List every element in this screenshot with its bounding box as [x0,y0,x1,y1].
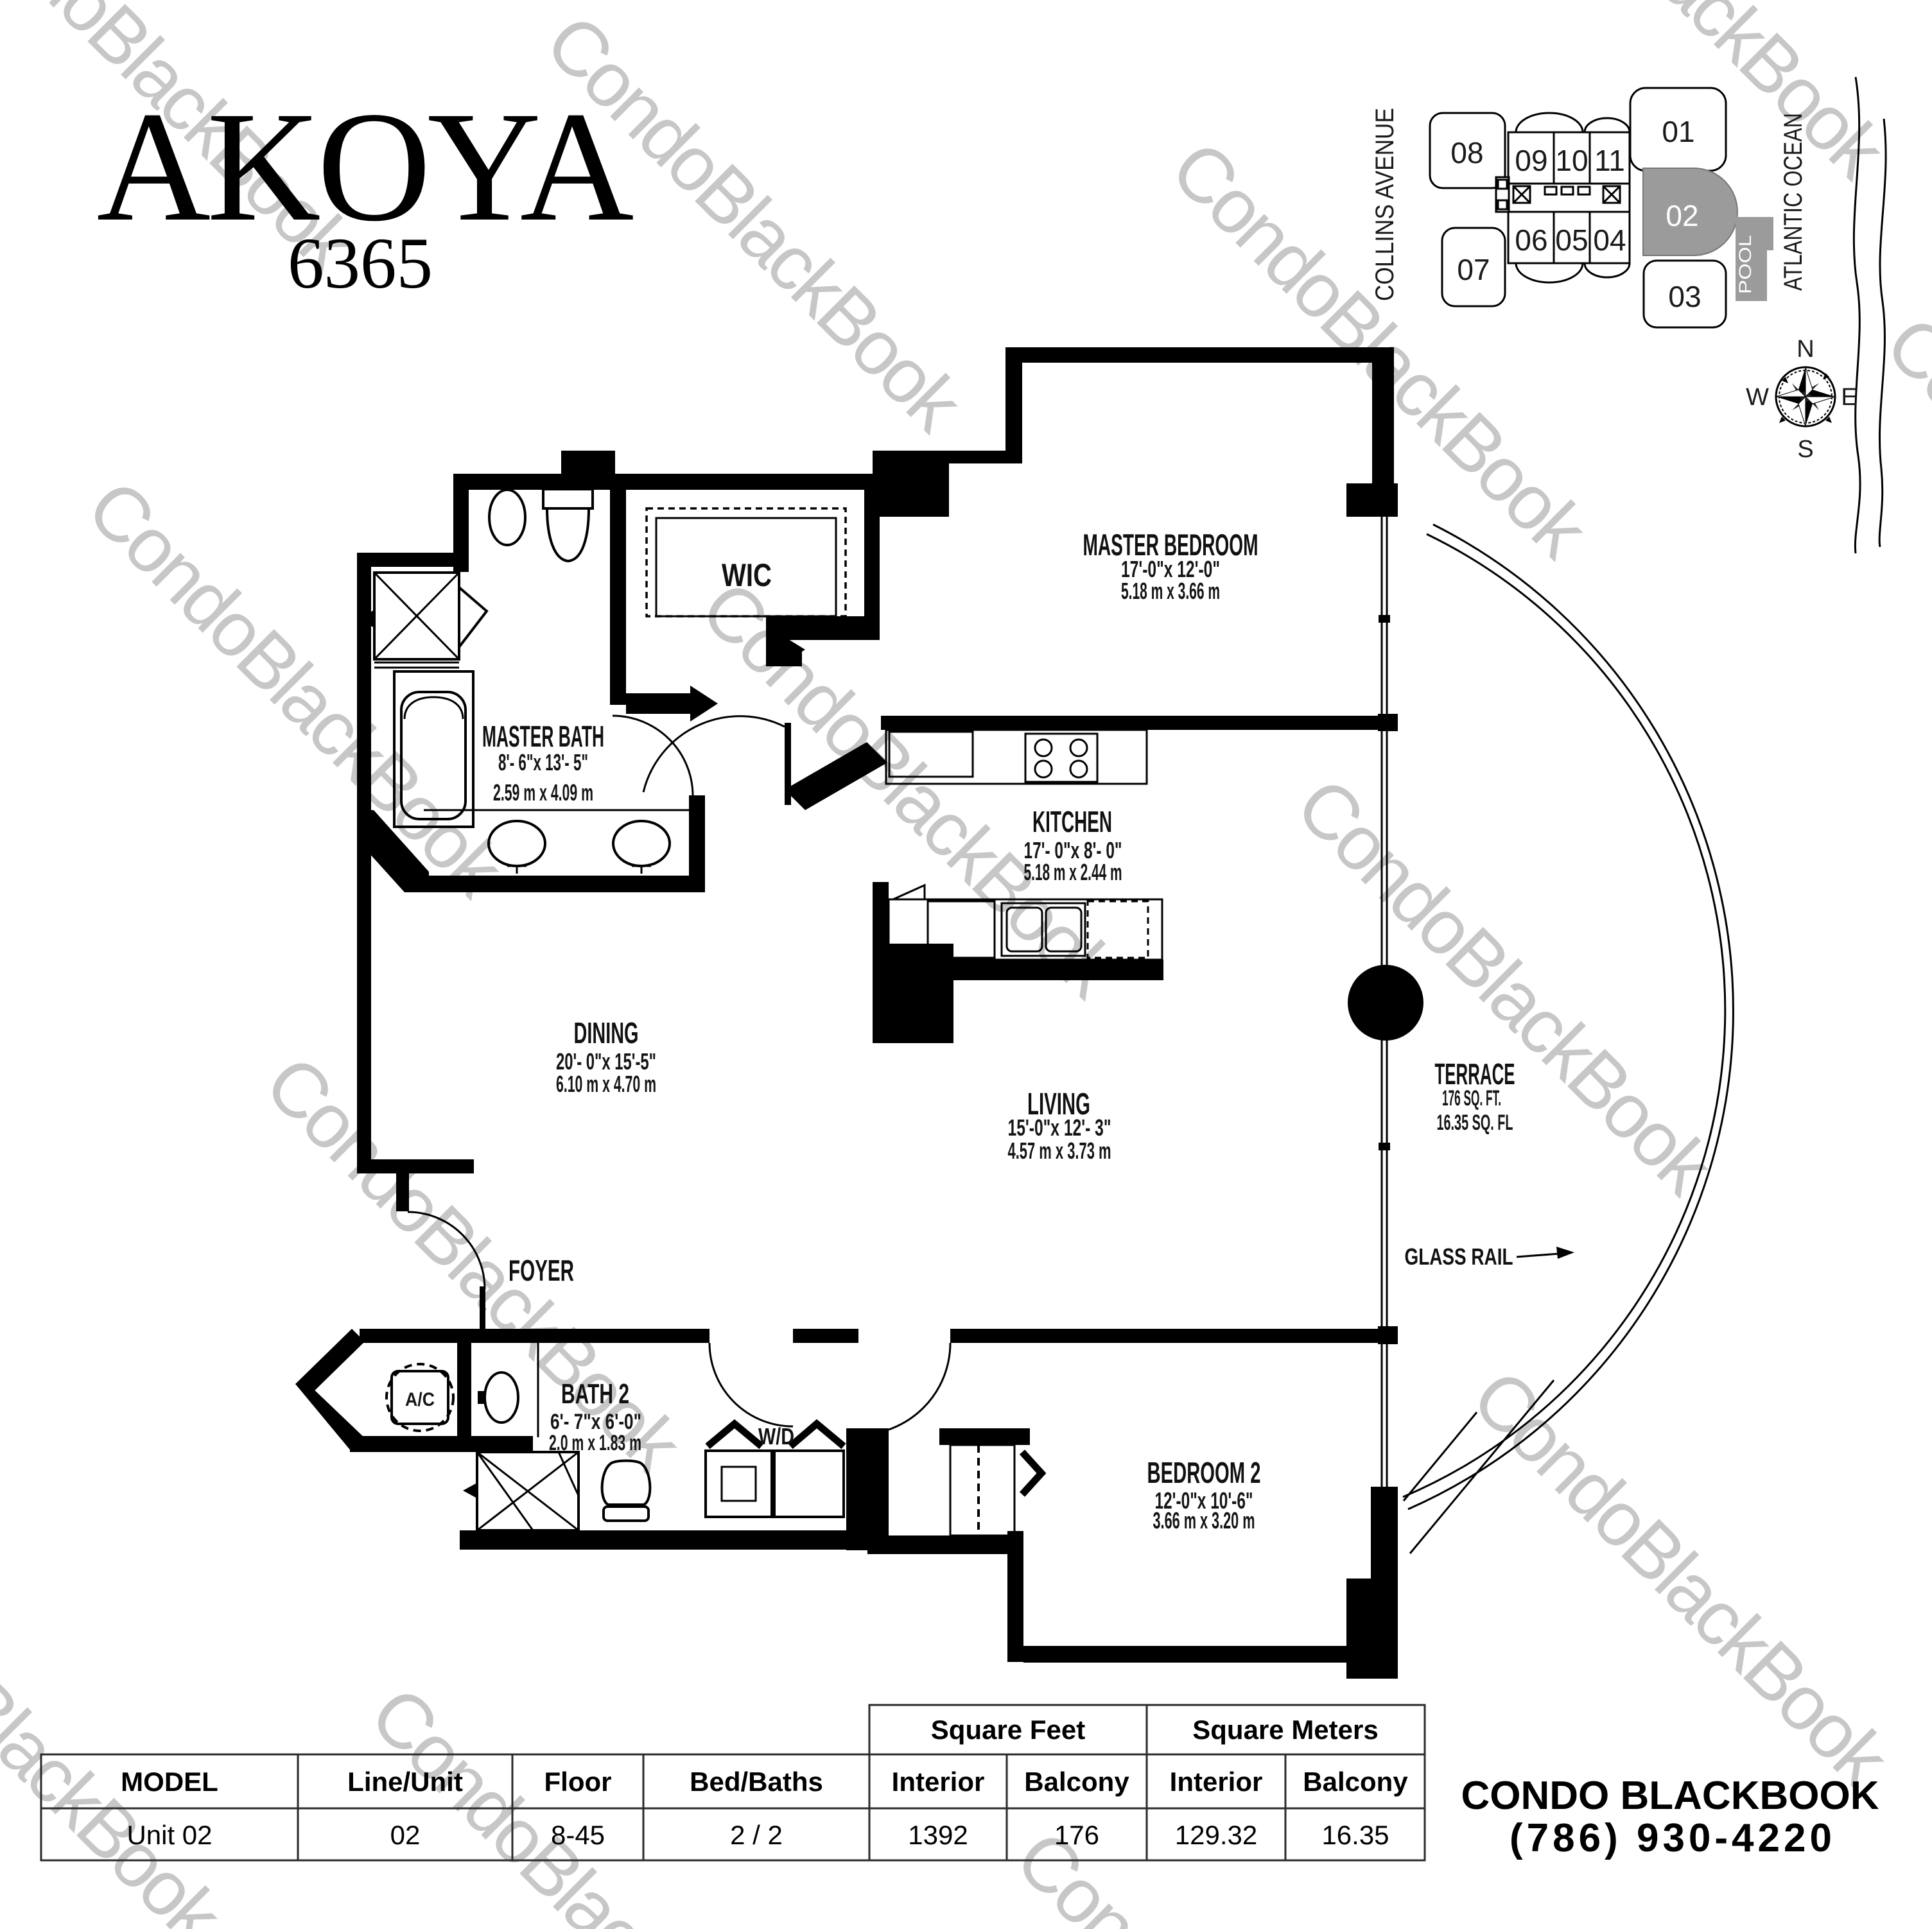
svg-text:6.10 m x 4.70 m: 6.10 m x 4.70 m [556,1071,656,1097]
svg-text:02: 02 [390,1820,421,1850]
svg-text:Balcony: Balcony [1303,1767,1408,1797]
svg-text:8'- 6"x 13'- 5": 8'- 6"x 13'- 5" [498,749,588,775]
svg-text:Unit 02: Unit 02 [126,1820,212,1850]
svg-text:Square Meters: Square Meters [1192,1715,1378,1745]
svg-text:CondoBlackBook: CondoBlackBook [354,1671,804,1929]
svg-text:BEDROOM 2: BEDROOM 2 [1147,1456,1261,1489]
svg-text:KITCHEN: KITCHEN [1032,805,1112,838]
svg-text:CondoBlackBook: CondoBlackBook [1870,300,1932,750]
svg-text:176 SQ. FT.: 176 SQ. FT. [1442,1086,1501,1111]
svg-text:176: 176 [1054,1820,1099,1850]
svg-text:Square Feet: Square Feet [931,1715,1085,1745]
svg-text:MODEL: MODEL [121,1767,218,1797]
svg-text:08: 08 [1450,136,1483,169]
svg-text:Interior: Interior [892,1767,985,1797]
svg-text:01: 01 [1662,115,1694,148]
svg-text:Line/Unit: Line/Unit [347,1767,463,1797]
svg-text:5.18 m x 3.66 m: 5.18 m x 3.66 m [1121,578,1220,604]
svg-text:E: E [1841,384,1857,411]
svg-text:04: 04 [1593,223,1626,257]
svg-text:CondoBlackBook: CondoBlackBook [0,1511,239,1929]
svg-text:N: N [1797,336,1814,363]
svg-text:16.35: 16.35 [1321,1820,1389,1850]
svg-text:1392: 1392 [908,1820,968,1850]
svg-text:(786) 930-4220: (786) 930-4220 [1510,1816,1836,1860]
svg-text:16.35 SQ. FL: 16.35 SQ. FL [1437,1111,1513,1135]
svg-text:CONDO BLACKBOOK: CONDO BLACKBOOK [1461,1774,1879,1818]
svg-text:S: S [1797,436,1813,463]
svg-text:Interior: Interior [1170,1767,1263,1797]
svg-text:A/C: A/C [405,1389,435,1410]
svg-text:DINING: DINING [574,1016,639,1050]
svg-text:11: 11 [1594,144,1625,177]
svg-text:03: 03 [1668,280,1701,313]
svg-text:Balcony: Balcony [1024,1767,1129,1797]
svg-text:129.32: 129.32 [1175,1820,1257,1850]
svg-text:09: 09 [1515,144,1547,177]
svg-text:W/D: W/D [758,1423,794,1449]
svg-text:4.57 m x 3.73 m: 4.57 m x 3.73 m [1008,1138,1111,1164]
svg-text:5.18 m x 2.44 m: 5.18 m x 2.44 m [1024,859,1122,885]
svg-text:CondoBlackBook: CondoBlackBook [1456,1354,1906,1803]
svg-text:8-45: 8-45 [551,1820,605,1850]
svg-text:2.59 m x 4.09 m: 2.59 m x 4.09 m [493,779,593,806]
svg-text:07: 07 [1457,253,1490,286]
svg-text:WIC: WIC [722,557,772,593]
svg-text:POOL: POOL [1736,235,1755,294]
svg-text:CondoBlackBook: CondoBlackBook [1280,762,1730,1211]
svg-text:10: 10 [1555,144,1588,177]
svg-text:MASTER BATH: MASTER BATH [482,720,604,753]
svg-text:02: 02 [1666,199,1698,232]
svg-text:BATH 2: BATH 2 [561,1378,629,1410]
svg-text:06: 06 [1515,223,1547,257]
svg-text:Bed/Baths: Bed/Baths [690,1767,823,1797]
svg-text:W: W [1746,384,1769,411]
svg-text:GLASS RAIL: GLASS RAIL [1405,1243,1513,1270]
svg-text:3.66 m x 3.20 m: 3.66 m x 3.20 m [1153,1507,1255,1534]
svg-text:COLLINS AVENUE: COLLINS AVENUE [1371,108,1399,301]
svg-text:FOYER: FOYER [509,1254,574,1287]
svg-text:CondoBlackBook: CondoBlackBook [71,464,521,913]
svg-text:6365: 6365 [288,223,433,304]
svg-text:05: 05 [1555,223,1588,257]
svg-text:Floor: Floor [544,1767,612,1797]
svg-text:15'-0"x 12'- 3": 15'-0"x 12'- 3" [1008,1114,1111,1141]
svg-text:ATLANTIC OCEAN: ATLANTIC OCEAN [1779,113,1807,291]
svg-text:2 / 2: 2 / 2 [730,1820,783,1850]
